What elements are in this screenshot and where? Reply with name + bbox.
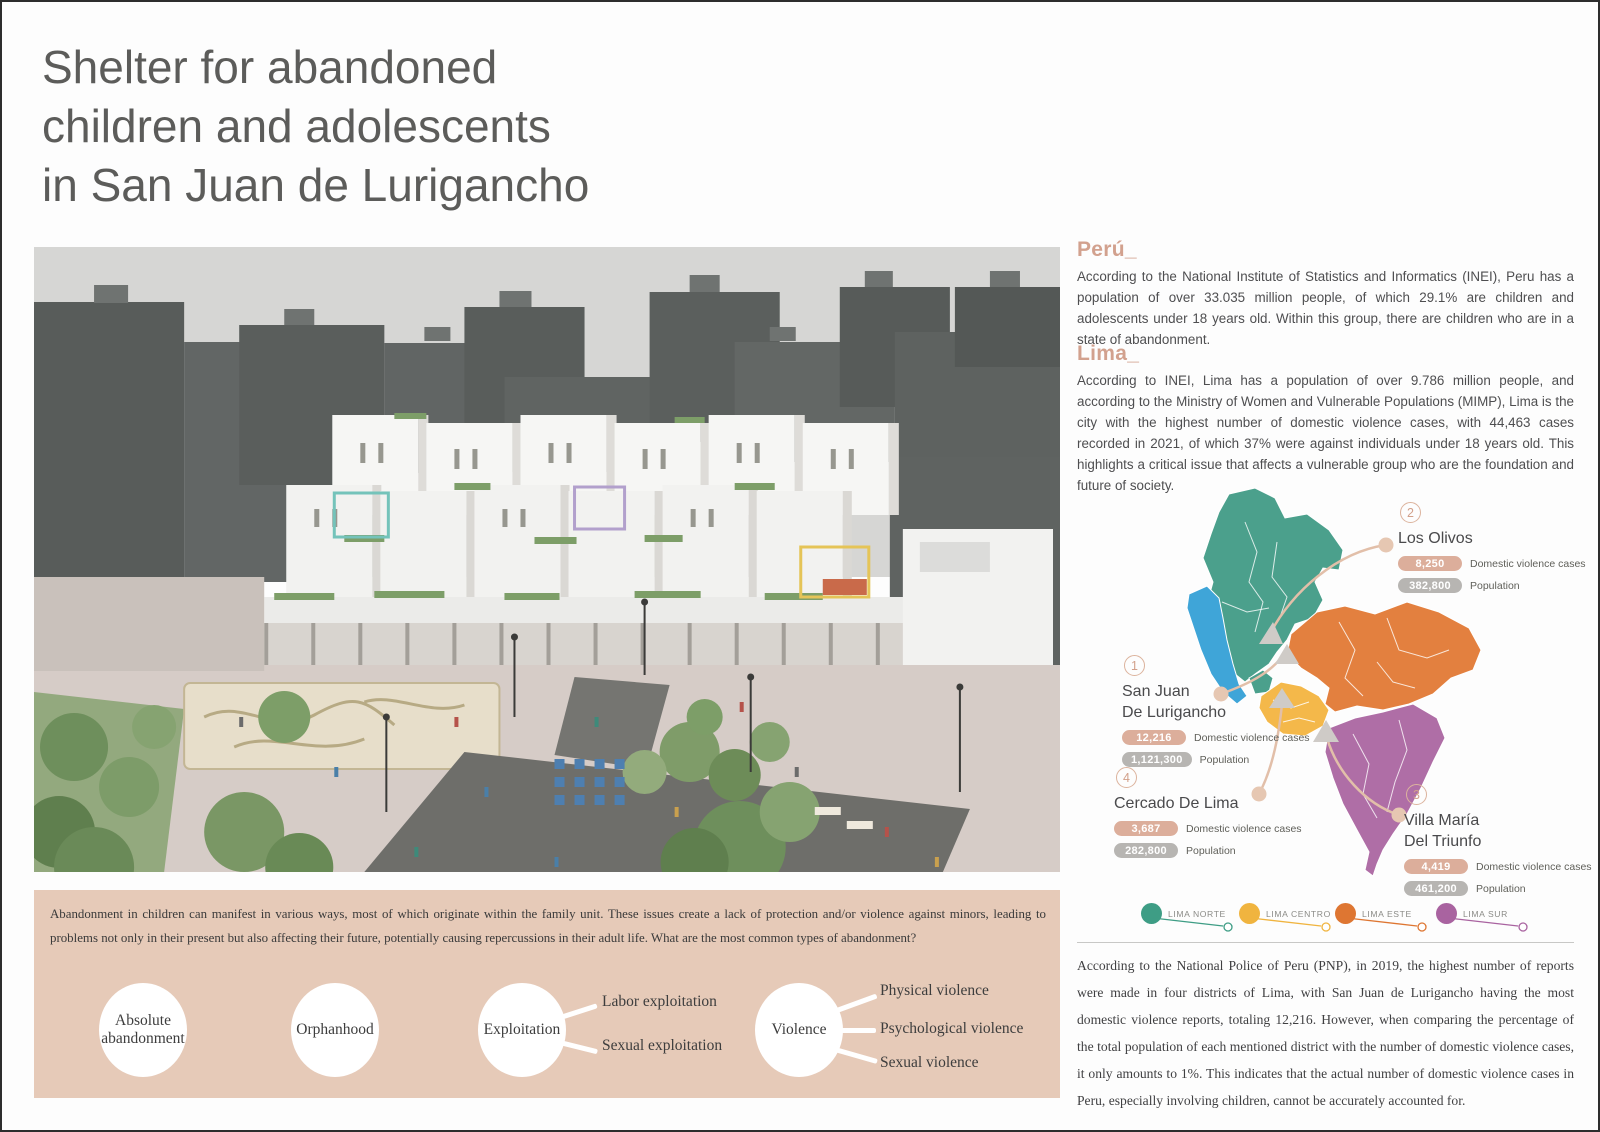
legend-item-lima-norte: LIMA NORTE <box>1141 901 1237 935</box>
branch-label-sexual-violence: Sexual violence <box>880 1054 979 1072</box>
cases-value: 3,687 <box>1114 821 1178 836</box>
cases-label: Domestic violence cases <box>1186 823 1302 835</box>
legend-item-lima-centro: LIMA CENTRO <box>1239 901 1335 935</box>
cases-label: Domestic violence cases <box>1476 861 1592 873</box>
population-label: Population <box>1470 580 1520 592</box>
cases-stat: 3,687 Domestic violence cases <box>1114 821 1314 836</box>
callout-number-badge: 2 <box>1400 502 1421 523</box>
abandonment-intro: Abandonment in children can manifest in … <box>50 902 1046 950</box>
pnp-paragraph: According to the National Police of Peru… <box>1077 952 1574 1114</box>
render-illustration <box>34 247 1060 872</box>
lima-heading: Lima_ <box>1077 342 1139 366</box>
title-line: Shelter for abandoned <box>42 38 589 97</box>
map-callout-san-juan-de-lurigancho: 1 San Juan De Lurigancho 12,216 Domestic… <box>1122 655 1322 767</box>
callout-district-name: Cercado De Lima <box>1114 793 1314 814</box>
population-value: 282,800 <box>1114 843 1178 858</box>
architectural-render <box>34 247 1060 872</box>
cases-value: 12,216 <box>1122 730 1186 745</box>
cases-stat: 4,419 Domestic violence cases <box>1404 859 1600 874</box>
type-circle-orphanhood: Orphanhood <box>291 983 379 1077</box>
callout-number-badge: 1 <box>1124 655 1145 676</box>
type-circle-violence: Violence <box>755 983 843 1077</box>
callout-number-badge: 4 <box>1116 767 1137 788</box>
population-stat: 382,800 Population <box>1398 578 1598 593</box>
cases-value: 8,250 <box>1398 556 1462 571</box>
title-line: in San Juan de Lurigancho <box>42 156 589 215</box>
peru-paragraph: According to the National Institute of S… <box>1077 266 1574 350</box>
population-value: 382,800 <box>1398 578 1462 593</box>
population-stat: 1,121,300 Population <box>1122 752 1322 767</box>
cases-label: Domestic violence cases <box>1470 558 1586 570</box>
branch-label-sexual-exploitation: Sexual exploitation <box>602 1037 722 1055</box>
legend-tail <box>1247 915 1335 933</box>
callout-district-name: Villa María Del Triunfo <box>1404 810 1600 852</box>
cases-value: 4,419 <box>1404 859 1468 874</box>
legend-item-lima-este: LIMA ESTE <box>1335 901 1431 935</box>
page-title: Shelter for abandoned children and adole… <box>42 38 589 215</box>
cases-label: Domestic violence cases <box>1194 732 1310 744</box>
legend-item-lima-sur: LIMA SUR <box>1436 901 1532 935</box>
poster: Shelter for abandoned children and adole… <box>0 0 1600 1132</box>
branch-label-labor-exploitation: Labor exploitation <box>602 993 717 1011</box>
cases-stat: 12,216 Domestic violence cases <box>1122 730 1322 745</box>
callout-district-name: Los Olivos <box>1398 528 1598 549</box>
population-stat: 282,800 Population <box>1114 843 1314 858</box>
population-label: Population <box>1200 754 1250 766</box>
population-value: 1,121,300 <box>1122 752 1192 767</box>
population-label: Population <box>1476 883 1526 895</box>
map-callout-cercado-de-lima: 4 Cercado De Lima 3,687 Domestic violenc… <box>1114 767 1314 858</box>
legend-tail <box>1149 915 1237 933</box>
legend-tail <box>1343 915 1431 933</box>
divider <box>1077 942 1574 943</box>
legend-tail <box>1444 915 1532 933</box>
type-circle-absolute-abandonment: Absolute abandonment <box>99 983 187 1077</box>
population-label: Population <box>1186 845 1236 857</box>
branch-label-physical-violence: Physical violence <box>880 982 989 1000</box>
callout-number-badge: 3 <box>1406 784 1427 805</box>
population-stat: 461,200 Population <box>1404 881 1600 896</box>
map-callout-los-olivos: 2 Los Olivos 8,250 Domestic violence cas… <box>1398 502 1598 593</box>
map-callout-villa-maria-del-triunfo: 3 Villa María Del Triunfo 4,419 Domestic… <box>1404 784 1600 896</box>
population-value: 461,200 <box>1404 881 1468 896</box>
peru-heading: Perú_ <box>1077 238 1137 262</box>
cases-stat: 8,250 Domestic violence cases <box>1398 556 1598 571</box>
branch-line <box>840 1028 876 1033</box>
branch-label-psychological-violence: Psychological violence <box>880 1020 1023 1038</box>
lima-paragraph: According to INEI, Lima has a population… <box>1077 370 1574 496</box>
title-line: children and adolescents <box>42 97 589 156</box>
type-circle-exploitation: Exploitation <box>478 983 566 1077</box>
callout-district-name: San Juan De Lurigancho <box>1122 681 1322 723</box>
